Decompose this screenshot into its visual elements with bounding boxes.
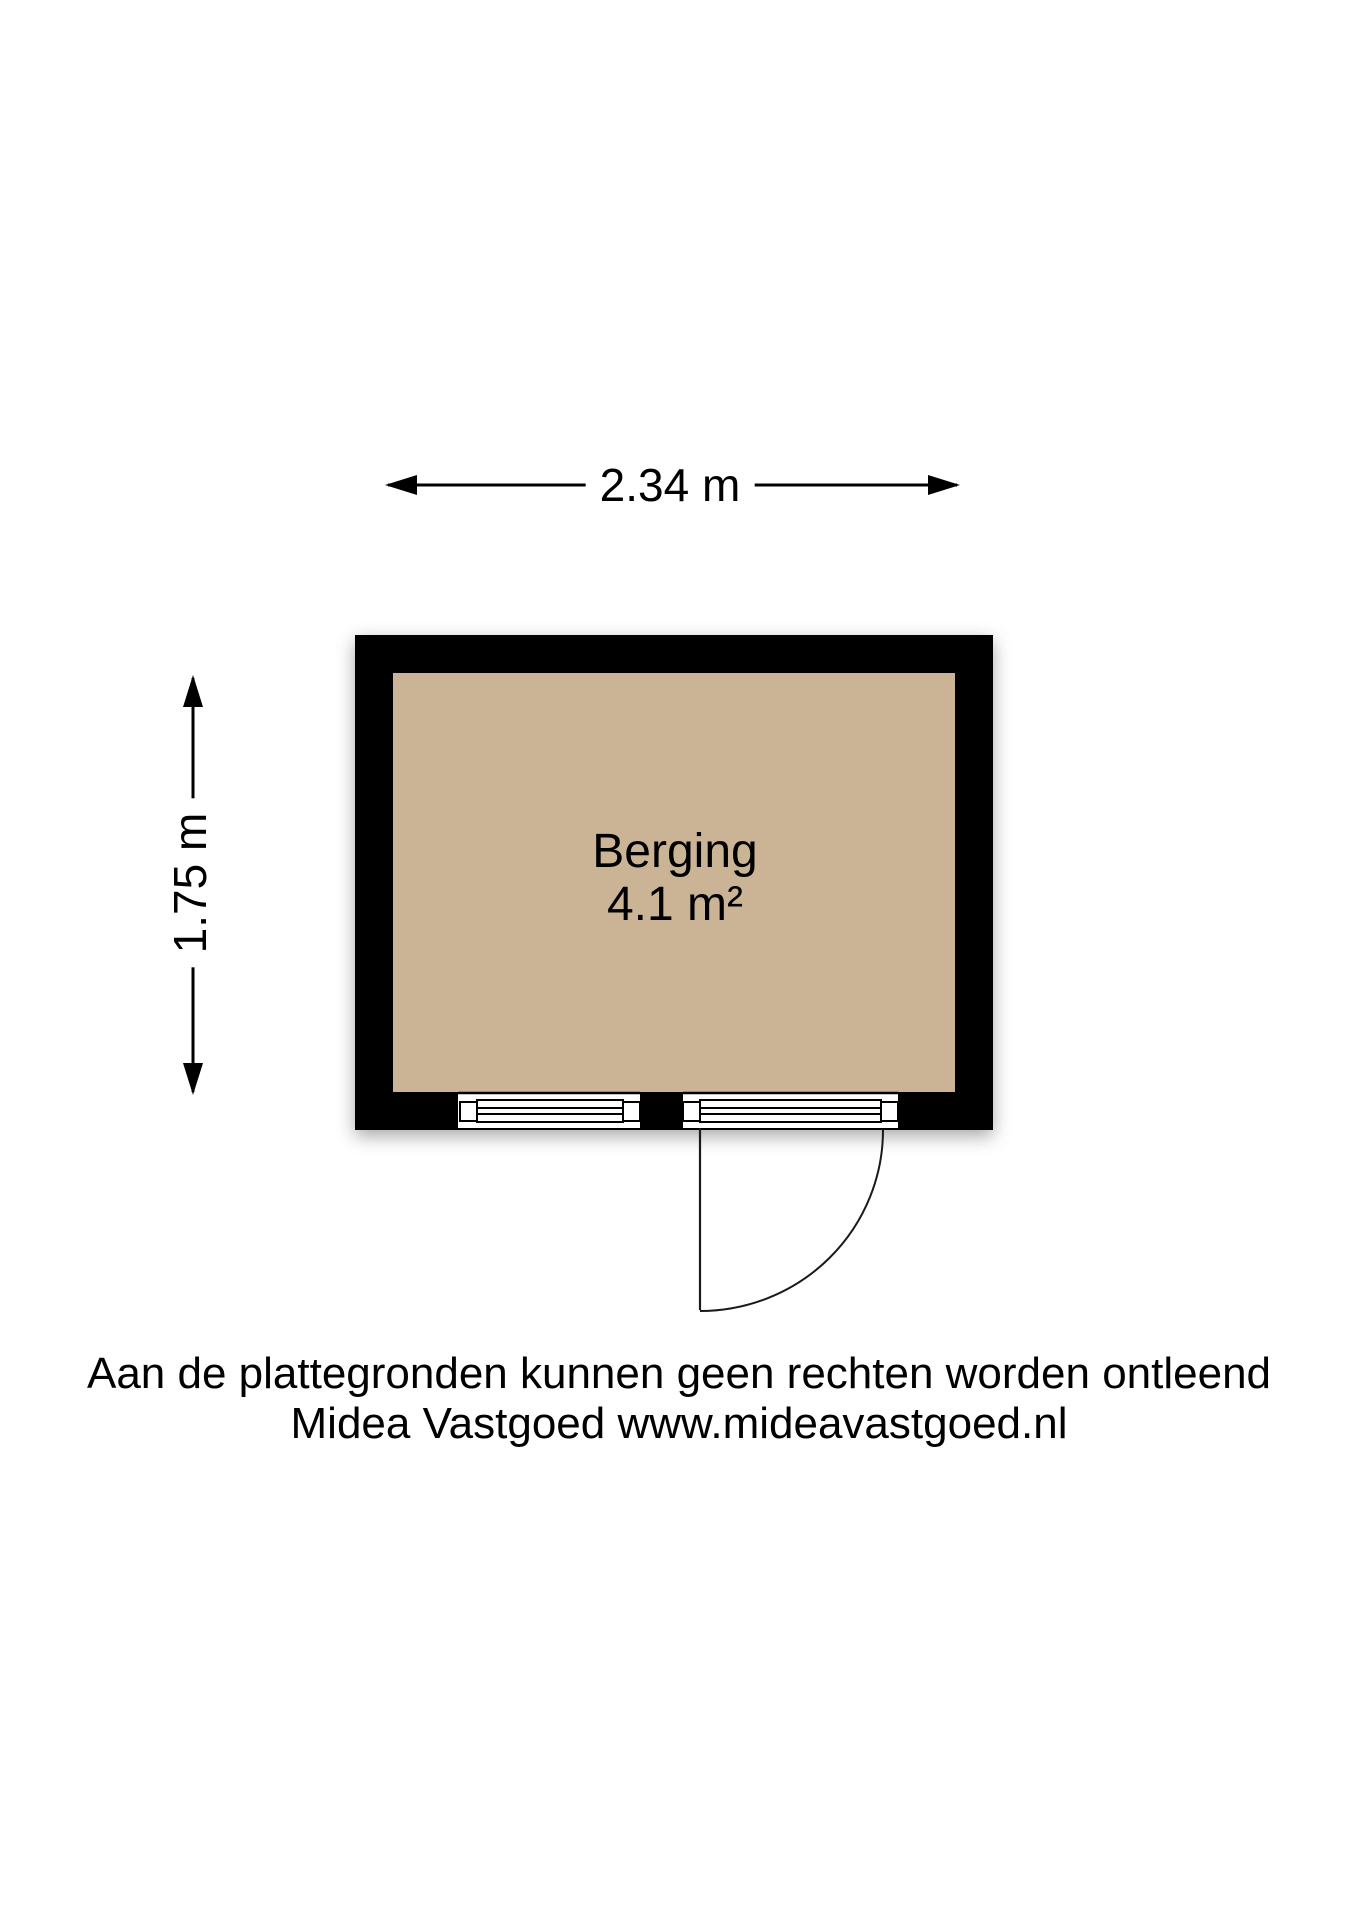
door-opening (683, 1092, 898, 1130)
window-glazing-frame (477, 1100, 623, 1122)
room-area-label: 4.1 m² (592, 878, 757, 931)
room-label-block: Berging 4.1 m² (592, 825, 757, 931)
arrowhead-up-icon (183, 675, 203, 707)
window-frame-post (623, 1102, 640, 1121)
branding-text: Midea Vastgoed www.mideavastgoed.nl (0, 1399, 1358, 1449)
height-dimension-label: 1.75 m (161, 799, 219, 968)
room-name-label: Berging (592, 825, 757, 878)
door-frame-post (881, 1102, 898, 1121)
width-dimension-label: 2.34 m (586, 456, 755, 514)
floorplan-page: 2.34 m 1.75 m Berging 4.1 m² Aan de plat… (0, 0, 1358, 1920)
window-frame-post (460, 1102, 477, 1121)
door-swing (700, 1128, 883, 1311)
door-swing-arc (700, 1130, 883, 1311)
door-panel-frame (700, 1100, 881, 1122)
disclaimer-text: Aan de plattegronden kunnen geen rechten… (0, 1349, 1358, 1399)
arrowhead-right-icon (928, 475, 960, 495)
disclaimer-block: Aan de plattegronden kunnen geen rechten… (0, 1349, 1358, 1449)
arrowhead-down-icon (183, 1063, 203, 1095)
door-frame-post (683, 1102, 700, 1121)
arrowhead-left-icon (385, 475, 417, 495)
window (458, 1092, 640, 1130)
